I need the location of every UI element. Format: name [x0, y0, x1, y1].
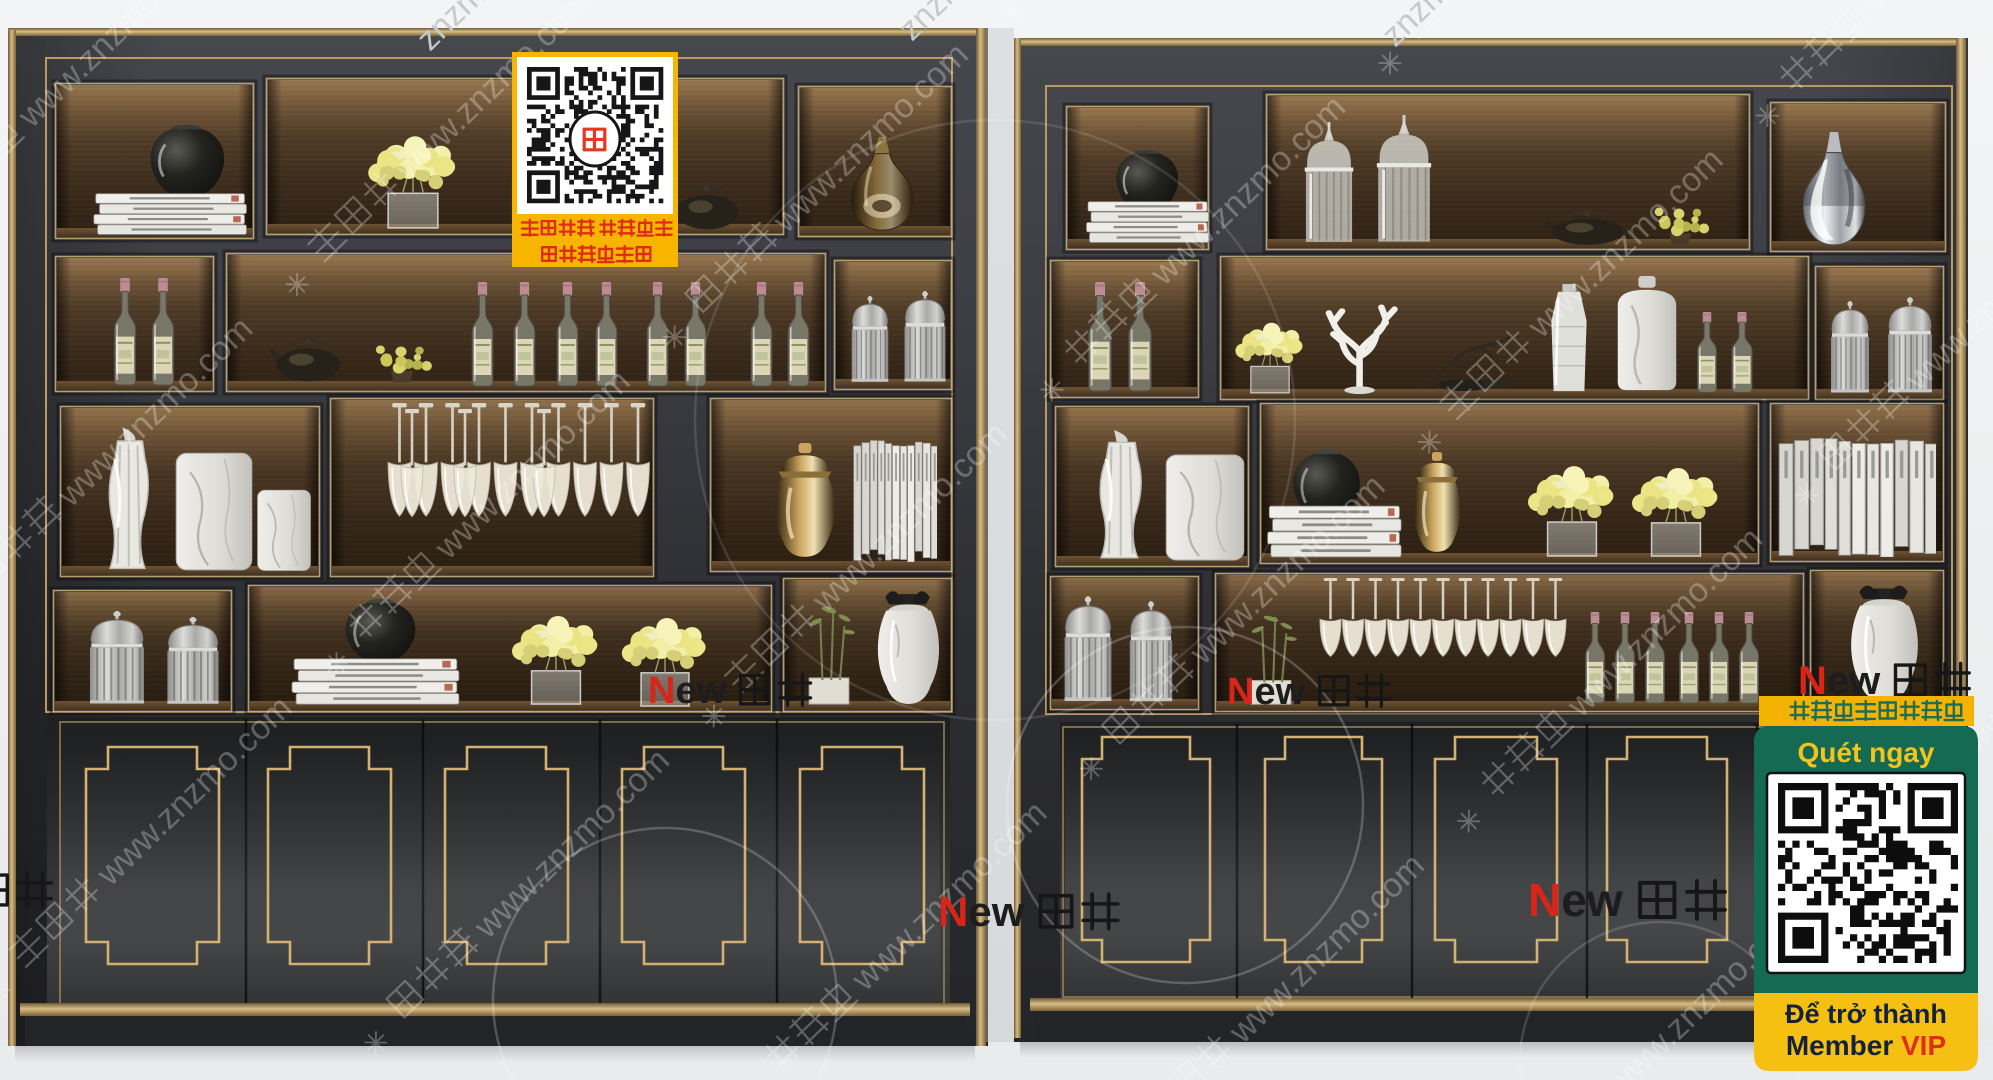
svg-text:New: New [1227, 671, 1306, 713]
svg-text:Để trở thành: Để trở thành [1785, 999, 1947, 1029]
svg-text:Member VIP: Member VIP [1786, 1030, 1946, 1061]
svg-text:New: New [938, 888, 1025, 935]
svg-text:Quét ngay: Quét ngay [1798, 737, 1935, 768]
svg-text:New: New [648, 670, 727, 712]
svg-text:New: New [1528, 874, 1623, 926]
